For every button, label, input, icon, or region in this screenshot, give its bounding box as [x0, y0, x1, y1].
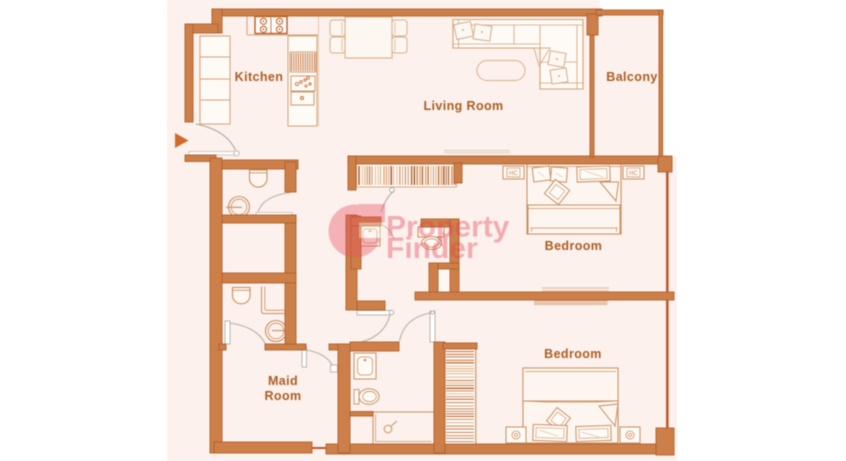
svg-text:HC: HC	[509, 171, 518, 177]
svg-text:Finder: Finder	[386, 232, 478, 265]
svg-text:Balcony: Balcony	[606, 70, 657, 84]
svg-text:HC: HC	[629, 171, 638, 177]
svg-text:Bedroom: Bedroom	[544, 347, 602, 361]
svg-text:Maid: Maid	[268, 374, 298, 388]
svg-text:Room: Room	[264, 389, 301, 403]
svg-text:Living Room: Living Room	[423, 99, 503, 113]
svg-text:Kitchen: Kitchen	[235, 70, 284, 84]
svg-text:Bedroom: Bedroom	[545, 239, 603, 253]
